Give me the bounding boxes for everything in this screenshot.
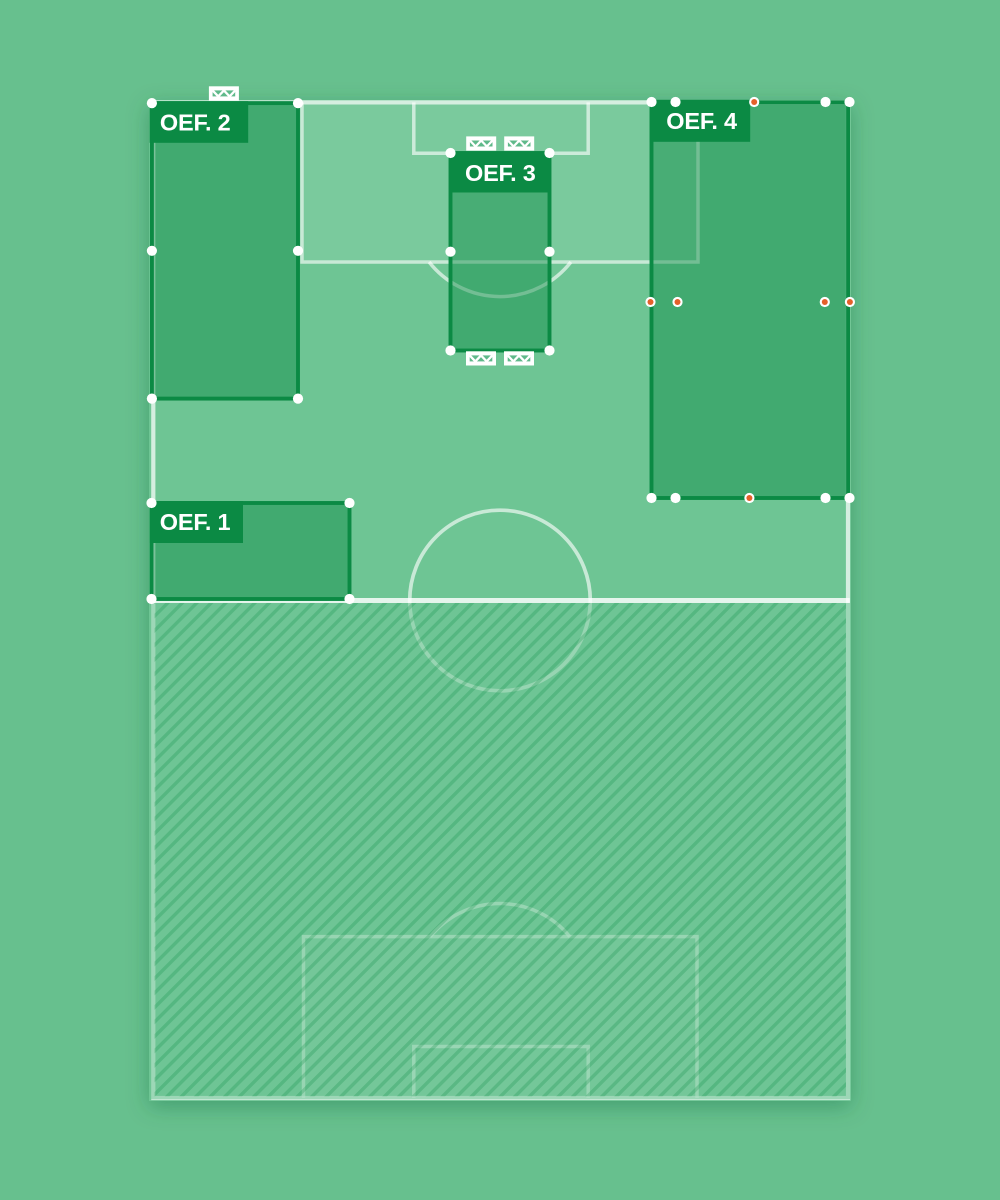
svg-text:OEF. 1: OEF. 1 (160, 509, 231, 535)
svg-text:OEF. 3: OEF. 3 (465, 160, 536, 186)
svg-text:OEF. 2: OEF. 2 (160, 109, 231, 135)
svg-text:OEF. 4: OEF. 4 (666, 108, 737, 134)
